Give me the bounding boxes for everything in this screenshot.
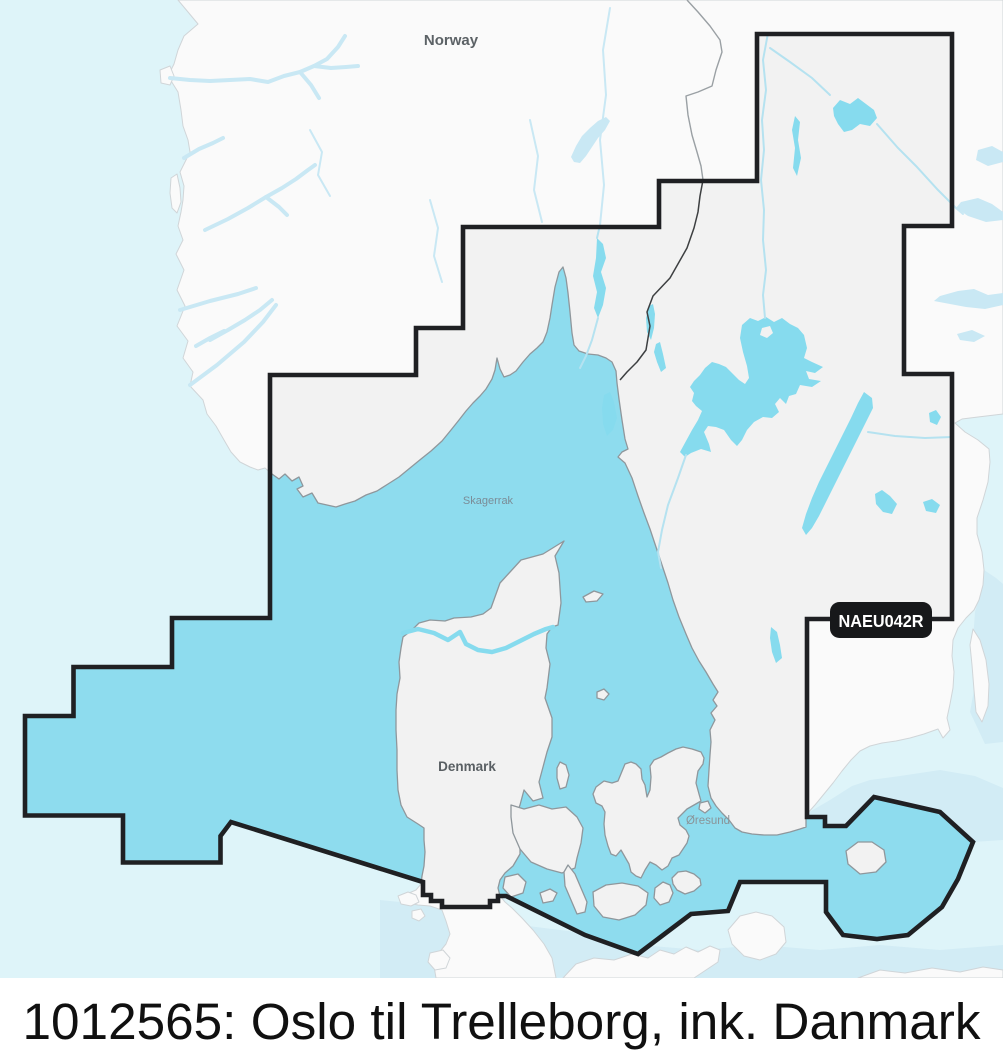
svg-text:Øresund: Øresund <box>686 815 730 827</box>
svg-text:Norway: Norway <box>424 32 479 49</box>
svg-text:NAEU042R: NAEU042R <box>839 611 924 631</box>
svg-text:Denmark: Denmark <box>438 759 496 774</box>
svg-text:Skagerrak: Skagerrak <box>463 495 514 507</box>
